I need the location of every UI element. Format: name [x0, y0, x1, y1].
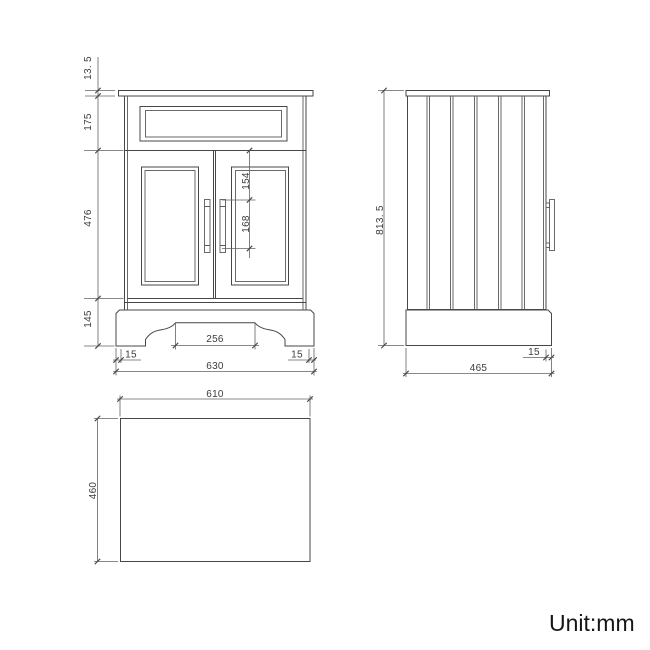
dim-side-overall-depth: 465 — [470, 363, 488, 374]
dim-front-plinth-inset-right: 15 — [291, 350, 303, 361]
dim-top-depth: 460 — [88, 482, 99, 500]
dim-front-plinth-inset-left: 15 — [125, 350, 137, 361]
unit-label: Unit:mm — [549, 610, 635, 636]
dim-side-overall-height: 813. 5 — [375, 205, 386, 235]
side-door-handle — [546, 200, 555, 251]
front-left-door-handle — [205, 200, 211, 253]
side-countertop — [406, 91, 550, 97]
technical-drawing-canvas: 13. 5 175 476 145 154 168 256 15 15 630 — [0, 0, 650, 650]
dim-front-plinth-cutout-width: 256 — [206, 334, 224, 345]
front-door-gap — [214, 151, 216, 299]
dim-front-door-section-height: 476 — [83, 209, 94, 227]
front-left-door-panel-outer — [142, 167, 199, 285]
dim-top-width: 610 — [206, 389, 224, 400]
dim-front-overall-width: 630 — [206, 361, 224, 372]
dim-side-plinth-inset: 15 — [528, 347, 540, 358]
vanity-dimension-drawing-page: 13. 5 175 476 145 154 168 256 15 15 630 — [0, 0, 650, 650]
dim-front-handle-top-offset: 154 — [241, 172, 252, 190]
front-drawer-panel-outer — [140, 107, 287, 142]
dim-front-countertop-thickness: 13. 5 — [83, 56, 94, 80]
front-view — [116, 91, 314, 347]
front-door-bottom-rail — [125, 299, 307, 303]
front-countertop — [119, 91, 314, 97]
dim-front-handle-length: 168 — [241, 215, 252, 233]
front-drawer-panel-inner — [146, 111, 282, 138]
top-view — [121, 419, 311, 562]
dim-front-plinth-height: 145 — [83, 310, 94, 328]
front-view-dimensions: 13. 5 175 476 145 154 168 256 15 15 630 — [83, 56, 317, 376]
front-left-door-panel-inner — [145, 171, 195, 282]
side-beadboard-lines — [427, 96, 525, 310]
dim-front-drawer-section-height: 175 — [83, 113, 94, 131]
top-view-dimensions: 610 460 — [88, 389, 313, 564]
side-plinth — [406, 310, 552, 346]
top-view-outline — [121, 419, 311, 562]
side-view-dimensions: 813. 5 15 465 — [375, 88, 555, 377]
front-right-door-handle — [220, 200, 226, 253]
side-view — [406, 91, 555, 346]
